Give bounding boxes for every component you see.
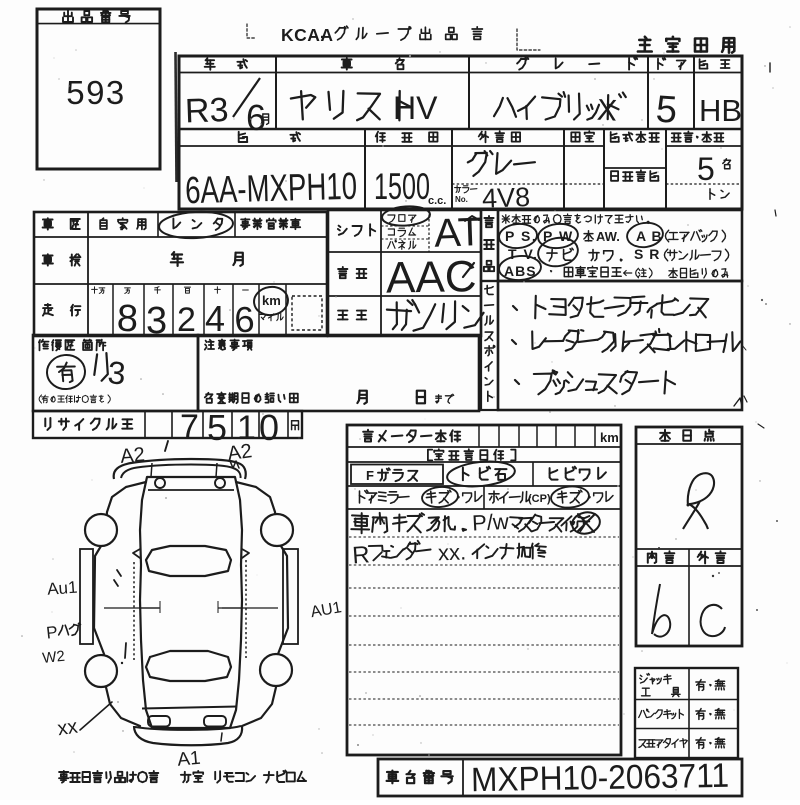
svg-text:.: . bbox=[320, 25, 324, 42]
svg-text:Au1: Au1 bbox=[47, 578, 79, 599]
svg-text:P/w: P/w bbox=[471, 509, 509, 536]
svg-text:F: F bbox=[366, 468, 374, 483]
svg-text:AT: AT bbox=[433, 210, 483, 256]
svg-text:5: 5 bbox=[655, 88, 679, 131]
svg-text:AW.: AW. bbox=[596, 229, 620, 244]
svg-text:No.: No. bbox=[455, 195, 468, 204]
svg-text:km: km bbox=[262, 293, 281, 308]
svg-text:4: 4 bbox=[205, 298, 225, 339]
svg-text:xx: xx bbox=[56, 716, 79, 741]
svg-text:c.c.: c.c. bbox=[428, 195, 446, 207]
svg-text:P: P bbox=[45, 622, 58, 642]
svg-text:W2: W2 bbox=[42, 648, 66, 667]
svg-text:HV: HV bbox=[393, 90, 438, 126]
svg-text:0: 0 bbox=[259, 407, 279, 448]
svg-text:(CP): (CP) bbox=[528, 493, 551, 505]
svg-text:A2: A2 bbox=[226, 440, 253, 465]
svg-text:R3: R3 bbox=[184, 91, 229, 130]
svg-text:MXPH10-2063711: MXPH10-2063711 bbox=[471, 757, 730, 799]
svg-text:X: X bbox=[596, 94, 618, 128]
svg-text:5: 5 bbox=[697, 151, 715, 187]
svg-text:6AA-MXPH10: 6AA-MXPH10 bbox=[185, 166, 358, 212]
svg-text:3: 3 bbox=[107, 354, 127, 391]
svg-text:1500: 1500 bbox=[374, 166, 430, 207]
svg-text:HB: HB bbox=[699, 93, 742, 128]
svg-text:KCAA: KCAA bbox=[281, 25, 334, 45]
svg-text:P S.: P S. bbox=[505, 228, 537, 244]
svg-text:xx.: xx. bbox=[438, 539, 467, 565]
svg-text:5: 5 bbox=[207, 407, 227, 448]
svg-text:km: km bbox=[600, 430, 619, 445]
svg-text:A1: A1 bbox=[176, 748, 201, 771]
svg-text:7: 7 bbox=[180, 408, 199, 446]
svg-text:A2: A2 bbox=[119, 444, 145, 468]
svg-text:R: R bbox=[351, 541, 370, 569]
svg-text:S R: S R bbox=[634, 246, 660, 262]
svg-text:2: 2 bbox=[177, 301, 196, 339]
svg-text:593: 593 bbox=[66, 74, 126, 111]
